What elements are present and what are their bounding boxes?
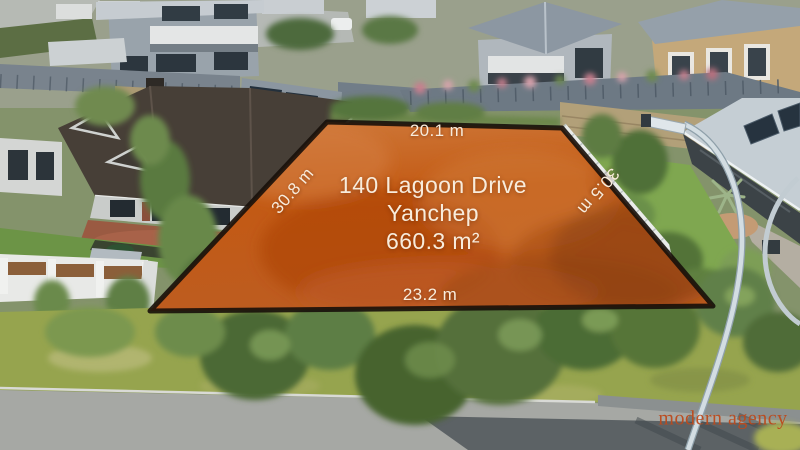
aerial-photo: 20.1 m 30.8 m 30.5 m 23.2 m 140 Lagoon D… bbox=[0, 0, 800, 450]
area-label: 660.3 m² bbox=[339, 227, 527, 255]
dimension-bottom-label: 23.2 m bbox=[403, 285, 457, 305]
address-label: 140 Lagoon Drive bbox=[339, 171, 527, 199]
agency-watermark: modern agency bbox=[658, 408, 787, 431]
dimension-top-label: 20.1 m bbox=[410, 121, 464, 141]
lot-address-block: 140 Lagoon Drive Yanchep 660.3 m² bbox=[339, 171, 527, 255]
suburb-label: Yanchep bbox=[339, 199, 527, 227]
